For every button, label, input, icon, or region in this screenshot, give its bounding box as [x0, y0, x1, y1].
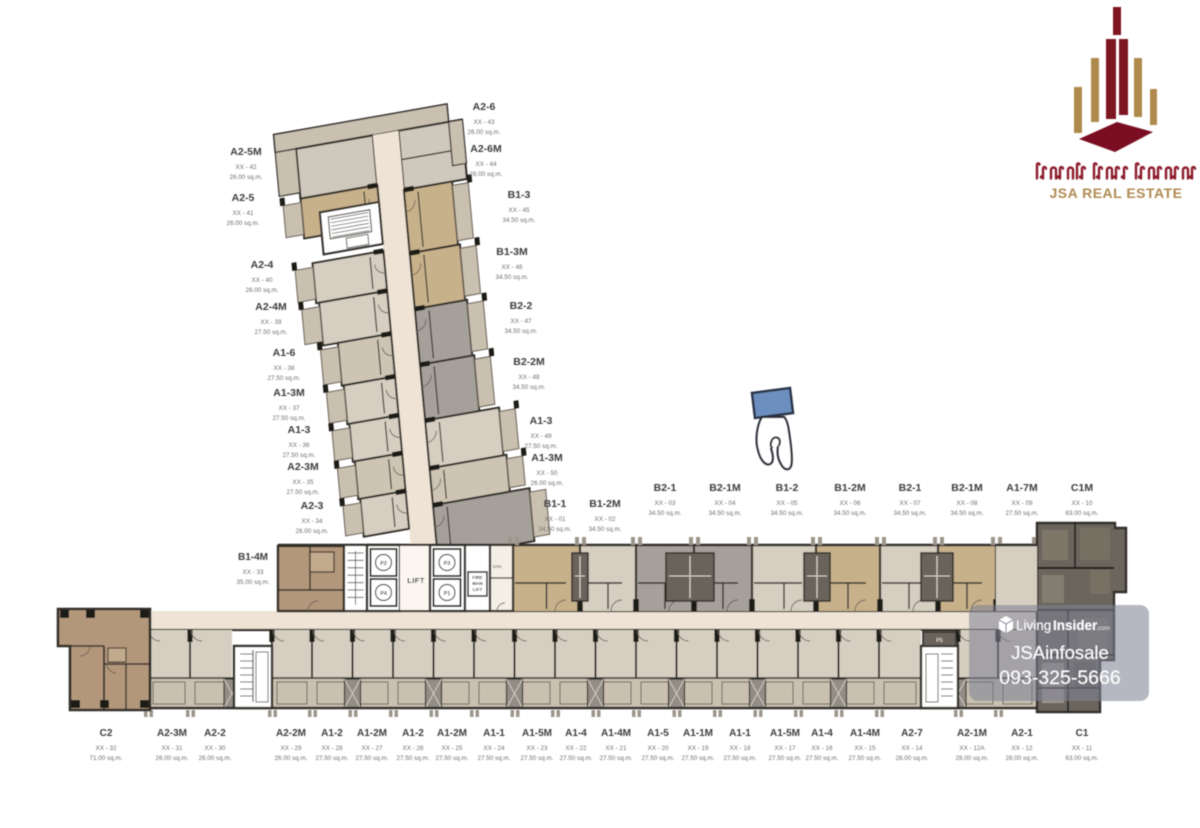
svg-text:B1-3M: B1-3M: [496, 246, 528, 258]
svg-text:26.00 sq.m.: 26.00 sq.m.: [230, 174, 263, 181]
svg-text:B1-3: B1-3: [508, 189, 531, 201]
svg-text:B2-2: B2-2: [510, 300, 533, 312]
svg-text:XX - 27: XX - 27: [362, 745, 383, 752]
svg-text:27.50 sq.m.: 27.50 sq.m.: [642, 755, 675, 762]
svg-text:34.50 sq.m.: 34.50 sq.m.: [589, 526, 622, 533]
svg-text:XX - 09: XX - 09: [1012, 500, 1033, 507]
svg-text:XX - 12: XX - 12: [1012, 745, 1033, 752]
svg-text:A2-2: A2-2: [204, 728, 226, 739]
svg-text:71.00 sq.m.: 71.00 sq.m.: [90, 755, 123, 762]
svg-text:B1-4M: B1-4M: [238, 552, 268, 563]
svg-text:XX - 25: XX - 25: [442, 745, 463, 752]
svg-text:A2-5M: A2-5M: [230, 146, 262, 158]
svg-text:A1-4: A1-4: [565, 728, 587, 739]
svg-text:63.00 sq.m.: 63.00 sq.m.: [1066, 755, 1099, 762]
svg-text:XX - 49: XX - 49: [531, 433, 552, 440]
svg-text:XX - 11: XX - 11: [1072, 745, 1093, 752]
svg-text:XX - 50: XX - 50: [537, 470, 558, 477]
svg-text:A2-1M: A2-1M: [957, 728, 987, 739]
svg-text:A1-5M: A1-5M: [770, 728, 800, 739]
svg-text:XX - 14: XX - 14: [902, 745, 923, 752]
svg-text:XX - 15: XX - 15: [855, 745, 876, 752]
svg-text:27.50 sq.m.: 27.50 sq.m.: [849, 755, 882, 762]
svg-text:XX - 28: XX - 28: [322, 745, 343, 752]
svg-text:26.00 sq.m.: 26.00 sq.m.: [296, 528, 329, 535]
svg-text:27.50 sq.m.: 27.50 sq.m.: [283, 452, 316, 459]
svg-text:XX - 07: XX - 07: [900, 500, 921, 507]
svg-text:XX - 03: XX - 03: [655, 500, 676, 507]
svg-text:A1-1M: A1-1M: [683, 728, 713, 739]
svg-text:28.00 sq.m.: 28.00 sq.m.: [956, 755, 989, 762]
svg-text:XX - 32: XX - 32: [96, 745, 117, 752]
svg-text:A2-3: A2-3: [301, 500, 324, 512]
svg-text:LIFT: LIFT: [473, 587, 483, 592]
svg-text:XX - 48: XX - 48: [519, 374, 540, 381]
svg-text:B2-1: B2-1: [899, 482, 922, 494]
svg-text:B1-1: B1-1: [544, 498, 567, 510]
svg-text:B2-1M: B2-1M: [709, 482, 741, 494]
svg-text:63.00 sq.m.: 63.00 sq.m.: [1066, 510, 1099, 517]
svg-text:34.50 sq.m.: 34.50 sq.m.: [649, 510, 682, 517]
svg-text:JSA REAL ESTATE: JSA REAL ESTATE: [1049, 185, 1182, 201]
svg-text:A2-4: A2-4: [251, 259, 274, 271]
svg-text:B2-1: B2-1: [654, 482, 677, 494]
svg-text:XX - 17: XX - 17: [775, 745, 796, 752]
svg-text:27.50 sq.m.: 27.50 sq.m.: [1006, 510, 1039, 517]
svg-text:27.50 sq.m.: 27.50 sq.m.: [769, 755, 802, 762]
svg-text:XX - 24: XX - 24: [484, 745, 505, 752]
svg-text:27.50 sq.m.: 27.50 sq.m.: [600, 755, 633, 762]
svg-text:JSAinfosale: JSAinfosale: [1011, 642, 1109, 663]
svg-text:Insider: Insider: [1053, 618, 1098, 633]
svg-text:26.00 sq.m.: 26.00 sq.m.: [156, 755, 189, 762]
svg-text:XX - 40: XX - 40: [252, 277, 273, 284]
svg-text:A1-5M: A1-5M: [522, 728, 552, 739]
svg-text:26.00 sq.m.: 26.00 sq.m.: [199, 755, 232, 762]
svg-text:A1-6: A1-6: [273, 347, 296, 359]
svg-text:A1-1: A1-1: [729, 728, 751, 739]
svg-text:XX - 36: XX - 36: [289, 442, 310, 449]
svg-text:A1-2M: A1-2M: [357, 728, 387, 739]
svg-text:A1-4M: A1-4M: [850, 728, 880, 739]
svg-text:A2-7: A2-7: [901, 728, 923, 739]
svg-text:27.50 sq.m.: 27.50 sq.m.: [287, 489, 320, 496]
svg-text:A1-3: A1-3: [288, 424, 311, 436]
svg-text:XX - 02: XX - 02: [595, 516, 616, 523]
svg-text:34.50 sq.m.: 34.50 sq.m.: [951, 510, 984, 517]
svg-text:XX - 33: XX - 33: [243, 569, 264, 576]
svg-text:FIRE: FIRE: [472, 575, 482, 580]
svg-text:A1-1: A1-1: [483, 728, 505, 739]
svg-text:XX - 38: XX - 38: [274, 365, 295, 372]
svg-text:MAN: MAN: [472, 581, 483, 586]
svg-text:B2-1M: B2-1M: [951, 482, 983, 494]
svg-text:27.50 sq.m.: 27.50 sq.m.: [397, 755, 430, 762]
svg-text:34.50 sq.m.: 34.50 sq.m.: [496, 274, 529, 281]
svg-text:A2-5: A2-5: [232, 192, 255, 204]
svg-text:A1-3: A1-3: [530, 415, 553, 427]
svg-text:XX - 37: XX - 37: [279, 405, 300, 412]
svg-text:LIFT: LIFT: [407, 576, 424, 585]
svg-text:28.00 sq.m.: 28.00 sq.m.: [1006, 755, 1039, 762]
svg-text:XX - 01: XX - 01: [545, 516, 566, 523]
svg-text:XX - 10: XX - 10: [1072, 500, 1093, 507]
svg-text:A1-5: A1-5: [647, 728, 669, 739]
svg-text:34.50 sq.m.: 34.50 sq.m.: [771, 510, 804, 517]
svg-text:27.50 sq.m.: 27.50 sq.m.: [724, 755, 757, 762]
svg-text:27.50 sq.m.: 27.50 sq.m.: [268, 375, 301, 382]
svg-text:XX - 44: XX - 44: [476, 161, 497, 168]
svg-text:XX - 45: XX - 45: [509, 207, 530, 214]
svg-text:A2-4M: A2-4M: [255, 301, 287, 313]
svg-text:Living: Living: [1016, 618, 1051, 633]
svg-text:34.50 sq.m.: 34.50 sq.m.: [503, 217, 536, 224]
svg-text:27.50 sq.m.: 27.50 sq.m.: [525, 443, 558, 450]
svg-text:SAN: SAN: [493, 564, 502, 569]
svg-text:A1-4: A1-4: [811, 728, 833, 739]
svg-text:B1-2M: B1-2M: [834, 482, 866, 494]
svg-text:34.50 sq.m.: 34.50 sq.m.: [505, 328, 538, 335]
svg-text:B1-2: B1-2: [776, 482, 799, 494]
svg-text:.com: .com: [1096, 625, 1110, 632]
svg-text:A2-6: A2-6: [473, 101, 496, 113]
svg-text:26.00 sq.m.: 26.00 sq.m.: [246, 287, 279, 294]
svg-text:XX - 43: XX - 43: [474, 119, 495, 126]
svg-text:A2-1: A2-1: [1011, 728, 1033, 739]
svg-text:XX - 26: XX - 26: [403, 745, 424, 752]
svg-text:A1-7M: A1-7M: [1006, 482, 1038, 494]
svg-text:P1: P1: [444, 591, 451, 597]
svg-text:C2: C2: [100, 728, 113, 739]
svg-text:B2-2M: B2-2M: [513, 356, 545, 368]
svg-text:P4: P4: [380, 591, 388, 597]
svg-text:XX - 23: XX - 23: [527, 745, 548, 752]
svg-text:C1: C1: [1076, 728, 1089, 739]
svg-text:XX - 16: XX - 16: [812, 745, 833, 752]
svg-text:27.50 sq.m.: 27.50 sq.m.: [316, 755, 349, 762]
svg-text:XX - 19: XX - 19: [688, 745, 709, 752]
svg-text:27.50 sq.m.: 27.50 sq.m.: [356, 755, 389, 762]
svg-text:XX - 35: XX - 35: [293, 479, 314, 486]
svg-text:34.50 sq.m.: 34.50 sq.m.: [513, 384, 546, 391]
svg-text:XX - 47: XX - 47: [511, 318, 532, 325]
svg-text:C1M: C1M: [1071, 482, 1093, 494]
svg-text:XX - 06: XX - 06: [840, 500, 861, 507]
svg-text:26.00 sq.m.: 26.00 sq.m.: [531, 480, 564, 487]
svg-text:XX - 30: XX - 30: [205, 745, 226, 752]
svg-text:26.00 sq.m.: 26.00 sq.m.: [470, 171, 503, 178]
svg-text:27.50 sq.m.: 27.50 sq.m.: [478, 755, 511, 762]
svg-text:XX - 12A: XX - 12A: [959, 745, 985, 752]
svg-text:B1-2M: B1-2M: [589, 498, 621, 510]
svg-text:XX - 29: XX - 29: [281, 745, 302, 752]
svg-text:34.50 sq.m.: 34.50 sq.m.: [894, 510, 927, 517]
svg-text:26.00 sq.m.: 26.00 sq.m.: [227, 220, 260, 227]
svg-text:XX - 31: XX - 31: [162, 745, 183, 752]
svg-text:XX - 20: XX - 20: [648, 745, 669, 752]
svg-text:A2-2M: A2-2M: [276, 728, 306, 739]
svg-text:34.50 sq.m.: 34.50 sq.m.: [834, 510, 867, 517]
svg-text:A1-3M: A1-3M: [273, 387, 305, 399]
svg-text:XX - 39: XX - 39: [261, 319, 282, 326]
svg-text:093-325-5666: 093-325-5666: [999, 667, 1120, 689]
svg-text:35.00 sq.m.: 35.00 sq.m.: [237, 579, 270, 586]
svg-text:XX - 46: XX - 46: [502, 264, 523, 271]
svg-text:XX - 04: XX - 04: [715, 500, 736, 507]
svg-text:34.50 sq.m.: 34.50 sq.m.: [709, 510, 742, 517]
svg-text:27.50 sq.m.: 27.50 sq.m.: [436, 755, 469, 762]
svg-text:A1-2M: A1-2M: [437, 728, 467, 739]
svg-text:A1-2: A1-2: [402, 728, 424, 739]
svg-text:XX - 05: XX - 05: [777, 500, 798, 507]
svg-text:A1-4M: A1-4M: [601, 728, 631, 739]
svg-text:27.50 sq.m.: 27.50 sq.m.: [521, 755, 554, 762]
svg-text:A2-3M: A2-3M: [157, 728, 187, 739]
svg-text:28.00 sq.m.: 28.00 sq.m.: [896, 755, 929, 762]
svg-text:P3: P3: [444, 561, 451, 567]
svg-text:A1-2: A1-2: [321, 728, 343, 739]
svg-text:XX - 42: XX - 42: [236, 164, 257, 171]
svg-text:XX - 34: XX - 34: [302, 518, 323, 525]
svg-text:XX - 41: XX - 41: [233, 210, 254, 217]
svg-text:27.50 sq.m.: 27.50 sq.m.: [255, 329, 288, 336]
svg-text:34.50 sq.m.: 34.50 sq.m.: [539, 526, 572, 533]
svg-text:A2-3M: A2-3M: [287, 461, 319, 473]
svg-text:A2-6M: A2-6M: [470, 143, 502, 155]
svg-text:XX - 21: XX - 21: [606, 745, 627, 752]
svg-text:27.50 sq.m.: 27.50 sq.m.: [273, 415, 306, 422]
svg-text:A1-3M: A1-3M: [531, 452, 563, 464]
svg-text:P5: P5: [936, 638, 943, 644]
svg-text:26.00 sq.m.: 26.00 sq.m.: [275, 755, 308, 762]
svg-text:XX - 08: XX - 08: [957, 500, 978, 507]
svg-text:27.50 sq.m.: 27.50 sq.m.: [806, 755, 839, 762]
svg-text:XX - 22: XX - 22: [566, 745, 587, 752]
svg-text:26.00 sq.m.: 26.00 sq.m.: [468, 129, 501, 136]
svg-text:27.50 sq.m.: 27.50 sq.m.: [560, 755, 593, 762]
svg-text:P2: P2: [380, 561, 387, 567]
svg-text:27.50 sq.m.: 27.50 sq.m.: [682, 755, 715, 762]
svg-text:XX - 18: XX - 18: [730, 745, 751, 752]
